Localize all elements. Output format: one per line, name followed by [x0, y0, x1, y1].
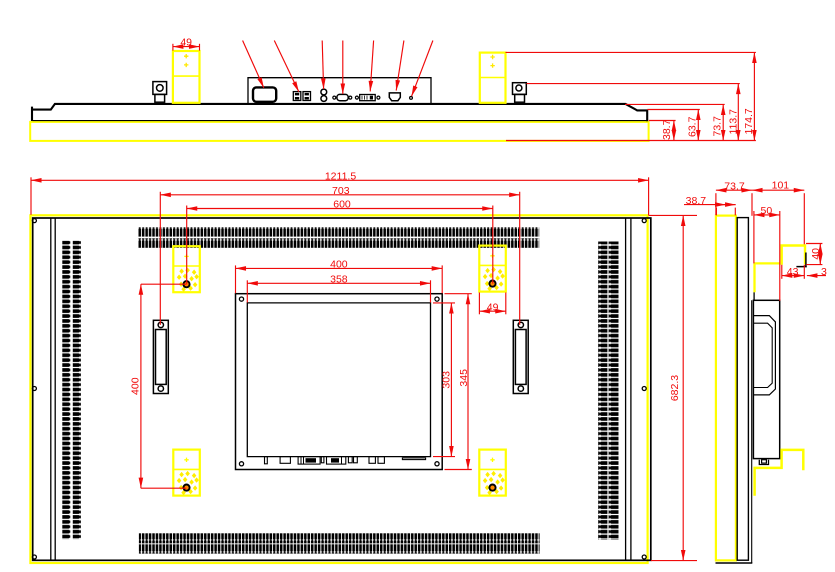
svg-text:43: 43: [787, 266, 799, 278]
svg-text:49: 49: [180, 36, 192, 48]
svg-text:73.7: 73.7: [711, 116, 723, 137]
svg-text:113.7: 113.7: [727, 109, 739, 135]
svg-text:73.7: 73.7: [724, 180, 745, 192]
svg-text:703: 703: [332, 185, 350, 197]
svg-text:50: 50: [761, 205, 773, 217]
svg-text:345: 345: [458, 369, 470, 387]
svg-text:38.7: 38.7: [661, 119, 673, 140]
svg-text:600: 600: [333, 199, 351, 211]
svg-text:682.3: 682.3: [669, 375, 681, 401]
svg-text:303: 303: [441, 371, 453, 389]
svg-text:38.7: 38.7: [686, 195, 707, 207]
svg-text:63.7: 63.7: [687, 116, 699, 137]
svg-text:358: 358: [330, 274, 348, 286]
svg-text:40: 40: [810, 248, 822, 260]
svg-text:3: 3: [821, 266, 827, 278]
svg-text:101: 101: [772, 179, 790, 191]
svg-text:174.7: 174.7: [743, 108, 755, 134]
svg-text:49: 49: [487, 301, 499, 313]
svg-text:400: 400: [130, 377, 142, 395]
svg-text:400: 400: [330, 259, 348, 271]
svg-text:1211.5: 1211.5: [325, 170, 356, 182]
